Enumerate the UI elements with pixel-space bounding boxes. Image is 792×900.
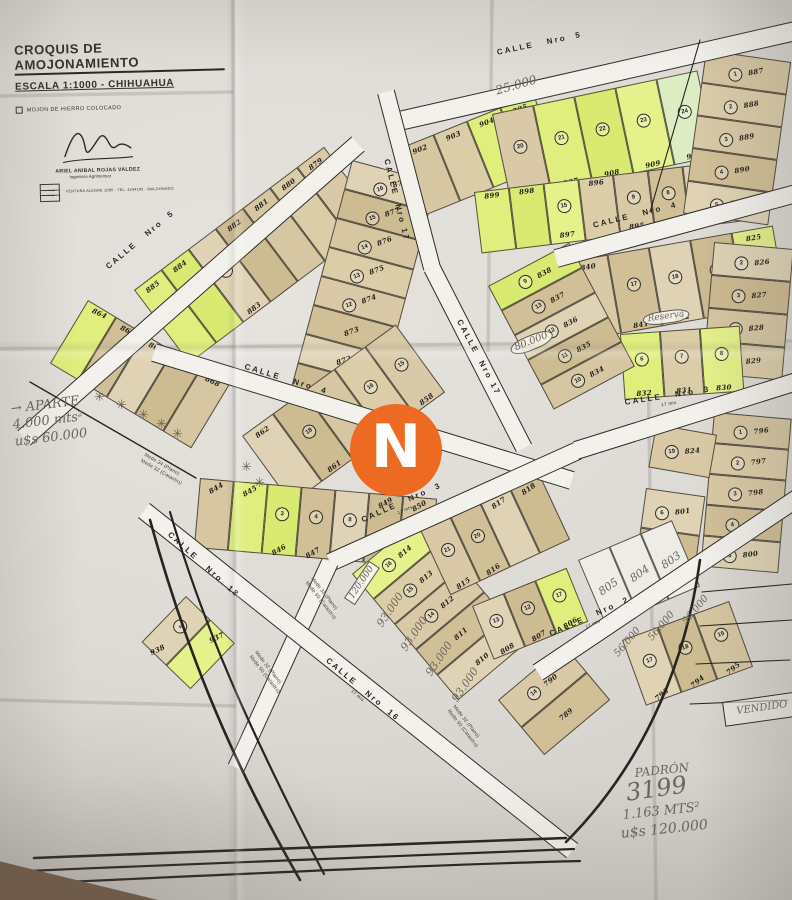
parcel-number: 889 (739, 130, 756, 142)
parcel-label-group: 873 (343, 324, 361, 338)
dimension-note: Mede 34 (Plano)Mede 32 (Catastro) (139, 452, 186, 487)
parcel-number: 887 (748, 65, 765, 77)
parcel-index-circle: 19 (664, 444, 679, 459)
legend-note: MOJON DE HIERRO COLOCADO (16, 101, 226, 113)
parcel-index-circle: 19 (712, 626, 730, 644)
vendido-box: VENDIDO (722, 691, 792, 726)
parcel-index-circle: 10 (569, 371, 588, 390)
parcel-number: 890 (734, 163, 751, 175)
parcel-index-circle: 15 (392, 355, 412, 375)
parcel-index-circle: 21 (438, 541, 457, 560)
signature-scribble (60, 121, 137, 169)
parcel-number: 847 (304, 545, 322, 561)
parcel-label-group: 2797 (730, 453, 767, 471)
parcel-label-group: 811 (452, 625, 470, 642)
parcel-number: 864 (90, 306, 108, 321)
parcel-number: 837 (548, 289, 566, 304)
parcel-index-circle: 17 (550, 586, 568, 604)
parcel-label-group: 3827 (731, 286, 768, 303)
street-name: CALLE Nro 17 (455, 318, 503, 397)
parcel-number: 825 (745, 232, 762, 244)
parcel-number: 828 (748, 322, 764, 332)
parcel-number: 794 (689, 673, 707, 690)
parcel-number: 899 (484, 190, 500, 201)
parcel-index-circle: 4 (308, 510, 323, 525)
parcel-index-circle: 6 (634, 352, 649, 367)
stamp-row: VENTURA ALEGRE 1085 - TEL. 4244100 - MAL… (18, 179, 228, 202)
parcel-number: 858 (418, 391, 436, 407)
parcel-index-circle: 4 (714, 164, 730, 180)
hand-star-mark: ✳ (241, 460, 252, 475)
parcel-label-group: 1796 (733, 422, 770, 440)
parcel-index-circle: 8 (660, 186, 676, 202)
pencil-annotation: → APARTE4.000 mts²u$s 60.000 (10, 393, 88, 450)
parcel-number: 902 (411, 142, 429, 156)
parcel-number: 814 (396, 543, 414, 560)
parcel-number: 938 (149, 642, 167, 657)
parcel-number: 882 (225, 217, 243, 234)
legend-note-text: MOJON DE HIERRO COLOCADO (27, 104, 122, 112)
parcel-label-group: 3798 (728, 483, 765, 501)
parcel-index-circle: 9 (626, 190, 642, 206)
parcel-index-circle: 16 (372, 181, 390, 199)
parcel-number: 797 (750, 455, 766, 466)
boundary-line (702, 584, 792, 592)
watermark-letter: N (371, 412, 421, 482)
parcel-number: 824 (685, 445, 701, 455)
title-block: CROQUIS DE AMOJONAMIENTO ESCALA 1:1000 -… (14, 37, 228, 202)
parcel-number: 807 (530, 628, 548, 644)
parcel-number: 883 (245, 300, 263, 317)
parcel-index-circle: 12 (519, 599, 537, 617)
map-scale: ESCALA 1:1000 - CHIHUAHUA (15, 76, 225, 92)
parcel-index-circle: 18 (677, 639, 695, 657)
parcel-index-circle: 16 (379, 555, 399, 575)
street-name: CALLE Nro 5 (496, 30, 583, 57)
parcel-number-pencil: 804 (627, 562, 652, 585)
hand-star-mark: ✳ (116, 398, 127, 413)
parcel-index-circle: 20 (512, 139, 529, 156)
street-name: CALLE Nro 5 (104, 208, 176, 271)
parcel-label-group: 10834 (569, 361, 607, 390)
parcel-number: 801 (675, 505, 691, 516)
parcel-index-circle: 9 (516, 272, 535, 291)
parcel-index-circle: 11 (556, 347, 575, 366)
parcel-index-circle: 18 (299, 422, 319, 442)
boundary-line (170, 512, 324, 874)
parcel-number: 903 (444, 129, 462, 143)
street-label: CALLE Nro 5 (104, 208, 176, 271)
parcel-label-group: 12874 (340, 289, 378, 314)
street-label: CALLE Nro 5 (496, 30, 583, 57)
parcel-label-group: 13875 (348, 260, 386, 285)
parcel-index-circle: 2 (734, 255, 749, 270)
parcel-number: 789 (557, 705, 575, 722)
parcel-index-circle: 14 (356, 239, 374, 257)
parcel-number: 827 (751, 289, 767, 299)
hand-star-mark: ✳ (94, 390, 105, 405)
parcel-index-circle: 3 (170, 617, 190, 637)
parcel-number: 830 (716, 382, 732, 392)
crease-line (0, 700, 236, 706)
parcel-index-circle: 7 (674, 349, 689, 364)
map-title: CROQUIS DE AMOJONAMIENTO (14, 37, 225, 75)
parcel-index-circle: 23 (635, 112, 652, 129)
parcel-number: 838 (535, 264, 553, 279)
parcel-number: 793 (653, 686, 671, 703)
parcel-number: 861 (325, 458, 343, 474)
hand-star-mark: ✳ (172, 427, 183, 442)
surveyor-contact: VENTURA ALEGRE 1085 - TEL. 4244100 - MAL… (66, 187, 174, 194)
parcel-number: 796 (753, 424, 769, 435)
hand-star-mark: ✳ (138, 408, 149, 423)
parcel-label-group: 4890 (714, 160, 751, 180)
parcel-number: 798 (748, 486, 764, 497)
parcel-number: 876 (376, 234, 394, 248)
stamp-box (40, 184, 60, 203)
table-background-corner (0, 858, 158, 900)
parcel-index-circle: 15 (556, 198, 572, 214)
parcel-index-circle: 8 (714, 346, 729, 361)
parcel-index-circle: 15 (364, 210, 382, 228)
parcel-label-group: 789 (557, 705, 575, 722)
parcel-number: 862 (253, 424, 271, 440)
street-label: CALLE Nro 17 (455, 318, 503, 397)
parcel-index-circle: 13 (487, 612, 505, 630)
parcel-number: 811 (452, 625, 470, 642)
parcel-index-circle: 13 (348, 268, 366, 286)
street-name: CALLE Nro 16 (324, 656, 401, 723)
parcel-index-circle: 8 (342, 513, 357, 528)
survey-marker-icon (16, 107, 23, 114)
parcel-number: 898 (519, 186, 535, 197)
parcel-label-group: 1887 (728, 62, 765, 82)
signature-underline (63, 157, 133, 163)
parcel-number: 897 (559, 229, 575, 240)
parcel-number-pencil: 805 (595, 575, 620, 598)
parcel-number: 937 (208, 630, 226, 645)
parcel-label-group: 2888 (723, 95, 760, 115)
parcel-number: 816 (484, 561, 502, 577)
parcel-index-circle: 24 (676, 104, 693, 121)
parcel-number: 800 (742, 548, 758, 559)
parcel-index-circle: 17 (641, 652, 659, 670)
parcel-label-group: 14876 (356, 231, 394, 256)
parcel-number: 835 (574, 339, 592, 354)
parcel-number: 826 (754, 256, 770, 266)
parcel-number: 874 (360, 291, 378, 305)
parcel-number: 808 (498, 640, 516, 656)
parcel-index-circle: 2 (723, 99, 739, 115)
parcel-number: 884 (171, 258, 189, 275)
parcel-index-circle: 18 (667, 269, 683, 285)
parcel-number: 846 (270, 542, 288, 558)
parcel-number: 810 (473, 650, 491, 667)
parcel-number: 812 (438, 593, 456, 610)
boundary-line (34, 838, 566, 858)
parcel-label-group: 810 (473, 650, 491, 667)
parcel-number: 829 (746, 355, 762, 365)
parcel-number: 795 (724, 660, 742, 677)
parcel-number: 896 (588, 177, 604, 188)
parcel-index-circle: 2 (730, 455, 746, 471)
parcel-index-circle: 13 (529, 297, 548, 316)
parcel-index-circle: 3 (731, 288, 746, 303)
parcel-index-circle: 17 (626, 276, 642, 292)
parcel-index-circle: 3 (718, 131, 734, 147)
hand-star-mark: ✳ (156, 417, 167, 432)
parcel-number: 813 (417, 568, 435, 585)
parcel-index-circle: 16 (361, 377, 381, 397)
parcel-block-mz-937-938: 3938937 (142, 596, 235, 689)
parcel-label-group: 19824 (664, 443, 701, 460)
parcel-index-circle: 1 (733, 424, 749, 440)
parcel-number: 844 (207, 480, 225, 496)
scanned-survey-map: 8858842188388288188087916878158771487613… (0, 0, 792, 900)
parcel-number: 888 (743, 97, 760, 109)
parcel-index-circle: 20 (468, 527, 487, 546)
boundary-line (28, 849, 574, 871)
parcel-number: 836 (561, 314, 579, 329)
parcel-number: 873 (343, 324, 361, 338)
parcel-label-group: 6801 (654, 503, 691, 521)
boundary-line (22, 861, 580, 884)
hand-star-mark: ✳ (254, 476, 265, 491)
street-label: CALLE Nro 1617 mts (320, 656, 401, 728)
parcel-index-circle: 21 (553, 130, 570, 147)
parcel-index-circle: 22 (594, 121, 611, 138)
parcel-label-group: 3889 (718, 128, 755, 148)
watermark-badge: N (350, 404, 442, 496)
parcel-index-circle: 1 (728, 66, 744, 82)
parcel-index-circle: 14 (524, 683, 544, 703)
parcel-index-circle: 3 (275, 507, 290, 522)
parcel-index-circle: 12 (340, 296, 358, 314)
parcel-label-group: 2826 (734, 253, 771, 270)
parcel-number: 875 (368, 263, 386, 277)
parcel-number: 885 (144, 278, 162, 295)
parcel-index-circle: 3 (728, 486, 744, 502)
parcel-index-circle: 6 (654, 505, 670, 521)
signature-path (64, 132, 131, 156)
parcel-number: 834 (588, 363, 606, 378)
